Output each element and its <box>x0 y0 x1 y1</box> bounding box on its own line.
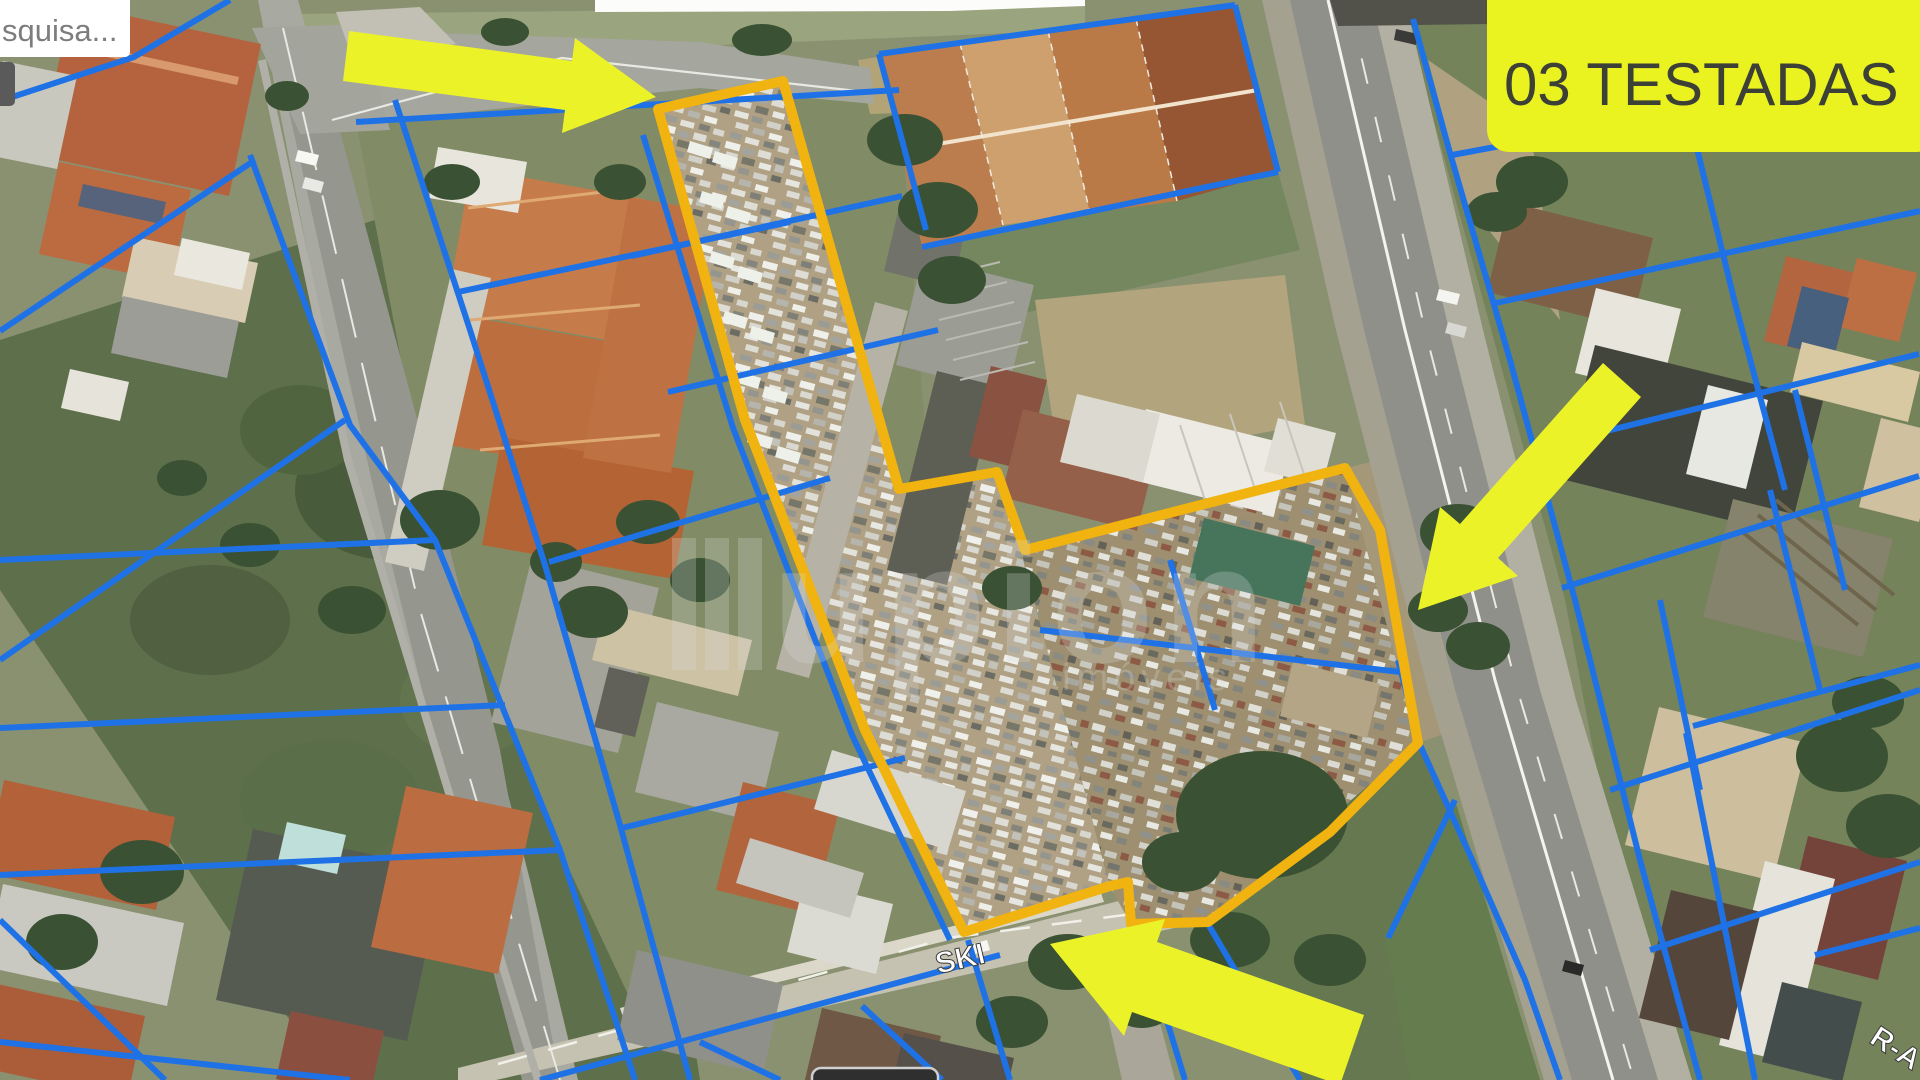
svg-text:03 TESTADAS: 03 TESTADAS <box>1504 51 1899 118</box>
svg-text:imóveis: imóveis <box>1062 657 1233 699</box>
svg-text:squisa...: squisa... <box>2 13 117 48</box>
